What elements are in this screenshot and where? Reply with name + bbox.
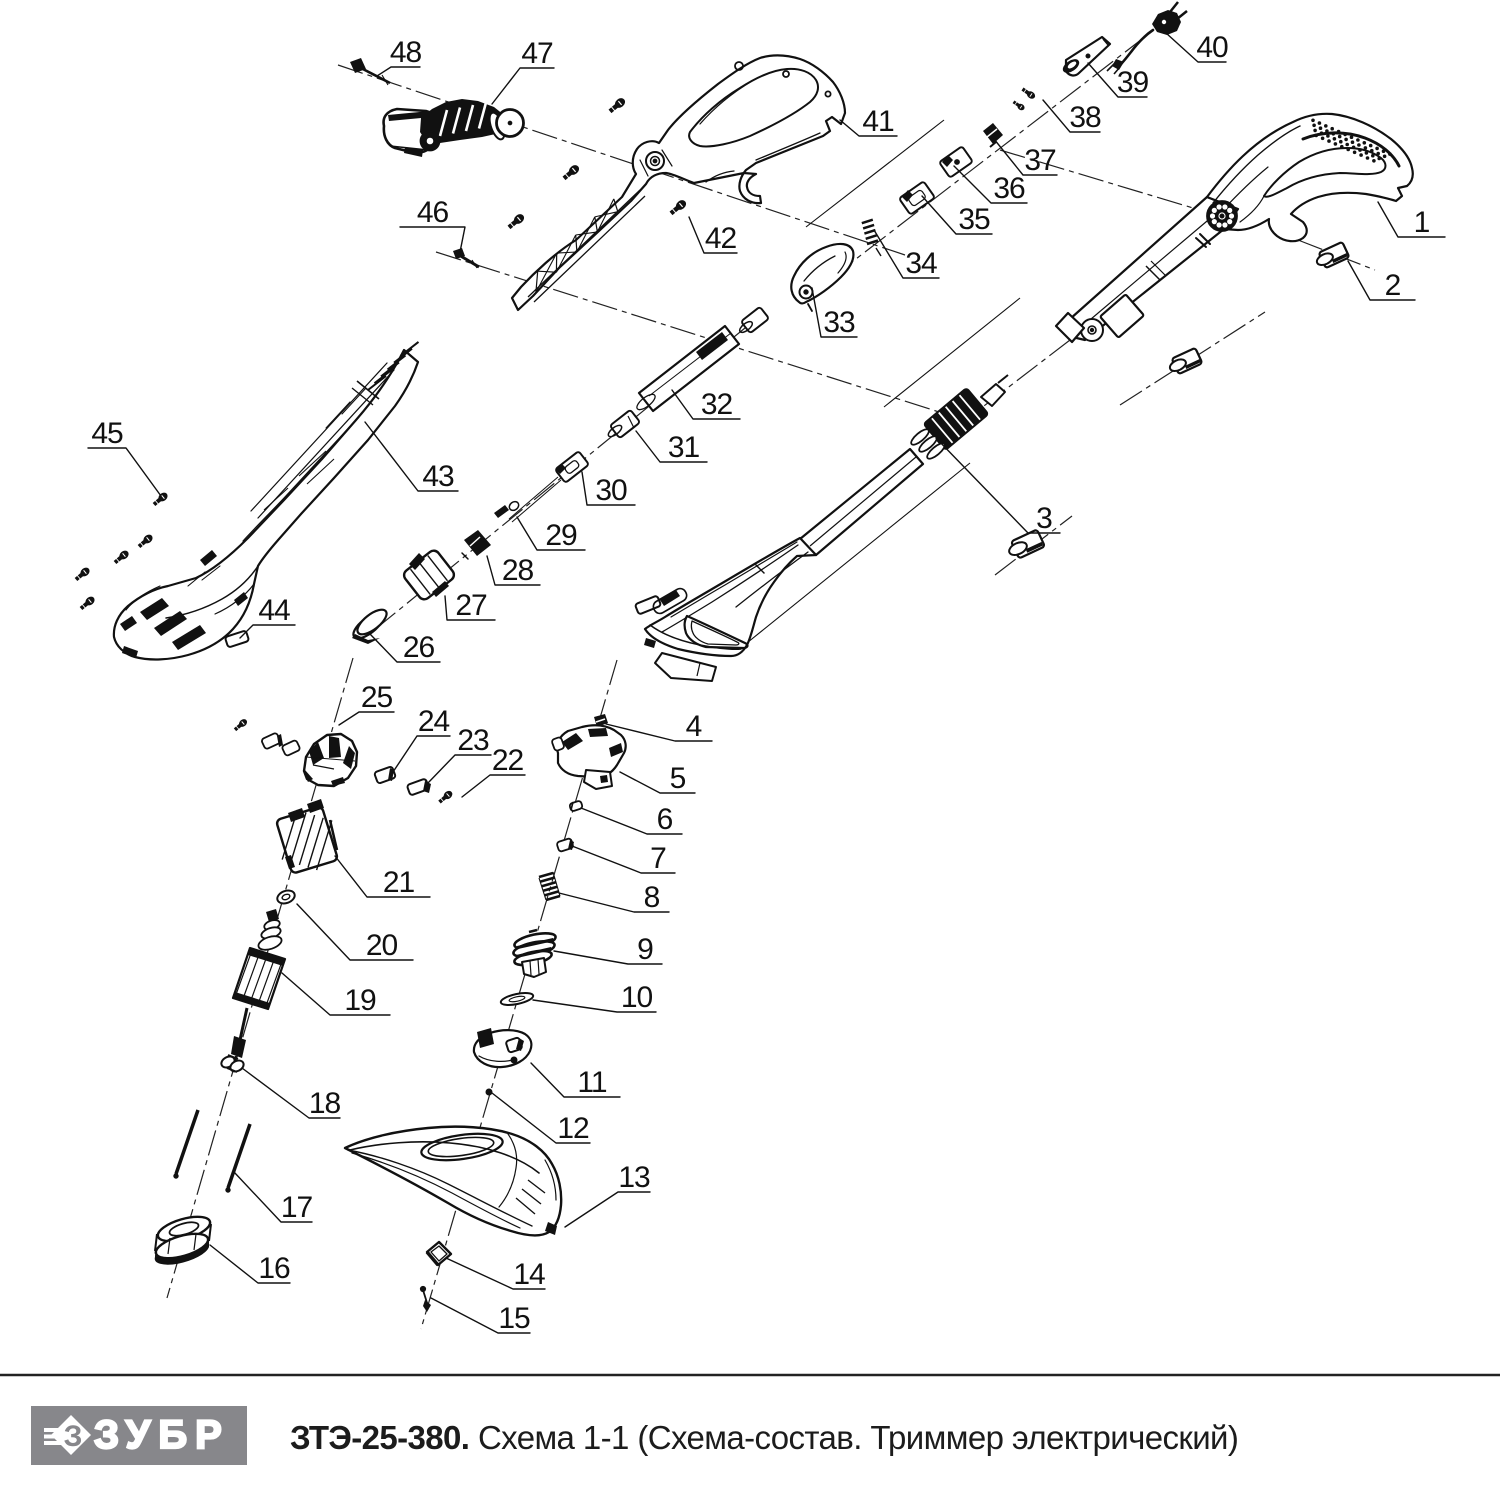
svg-text:44: 44 [258,594,290,627]
svg-text:20: 20 [366,929,398,962]
svg-text:47: 47 [521,37,553,70]
svg-text:17: 17 [281,1191,313,1224]
svg-text:З: З [64,1420,83,1453]
svg-text:8: 8 [644,881,660,914]
svg-text:36: 36 [993,172,1025,205]
svg-text:14: 14 [513,1258,545,1291]
svg-text:19: 19 [344,984,376,1017]
svg-text:10: 10 [621,981,653,1014]
svg-text:38: 38 [1069,101,1101,134]
svg-text:43: 43 [422,460,454,493]
svg-text:42: 42 [705,222,737,255]
svg-text:1: 1 [1414,206,1430,239]
svg-text:9: 9 [637,933,653,966]
svg-text:16: 16 [258,1252,290,1285]
svg-text:46: 46 [417,196,449,229]
svg-text:ЗУБР: ЗУБР [94,1413,230,1457]
svg-text:21: 21 [383,866,415,899]
svg-text:34: 34 [905,247,937,280]
svg-text:37: 37 [1024,144,1056,177]
svg-text:12: 12 [557,1112,589,1145]
svg-text:26: 26 [403,631,435,664]
svg-text:24: 24 [418,705,450,738]
svg-text:32: 32 [701,388,733,421]
svg-text:39: 39 [1117,66,1149,99]
svg-text:28: 28 [502,554,534,587]
svg-text:11: 11 [577,1066,606,1099]
svg-text:29: 29 [545,519,577,552]
svg-text:5: 5 [670,762,686,795]
svg-text:48: 48 [390,36,422,69]
svg-text:2: 2 [1385,269,1401,302]
svg-text:3: 3 [1036,502,1052,535]
svg-text:35: 35 [958,203,990,236]
svg-text:6: 6 [657,803,673,836]
svg-text:13: 13 [618,1161,650,1194]
svg-text:18: 18 [309,1087,341,1120]
svg-text:25: 25 [361,681,393,714]
svg-text:30: 30 [595,474,627,507]
svg-text:45: 45 [91,417,123,450]
svg-text:31: 31 [668,431,700,464]
svg-text:41: 41 [862,105,894,138]
svg-text:27: 27 [455,589,487,622]
svg-text:15: 15 [498,1302,530,1335]
svg-text:ЗТЭ-25-380. Схема 1-1 (Схема-с: ЗТЭ-25-380. Схема 1-1 (Схема-состав. Три… [290,1419,1238,1456]
svg-text:23: 23 [457,724,489,757]
svg-text:7: 7 [650,842,666,875]
svg-text:4: 4 [686,710,702,743]
svg-text:33: 33 [823,306,855,339]
svg-text:22: 22 [492,744,524,777]
svg-text:40: 40 [1196,31,1228,64]
